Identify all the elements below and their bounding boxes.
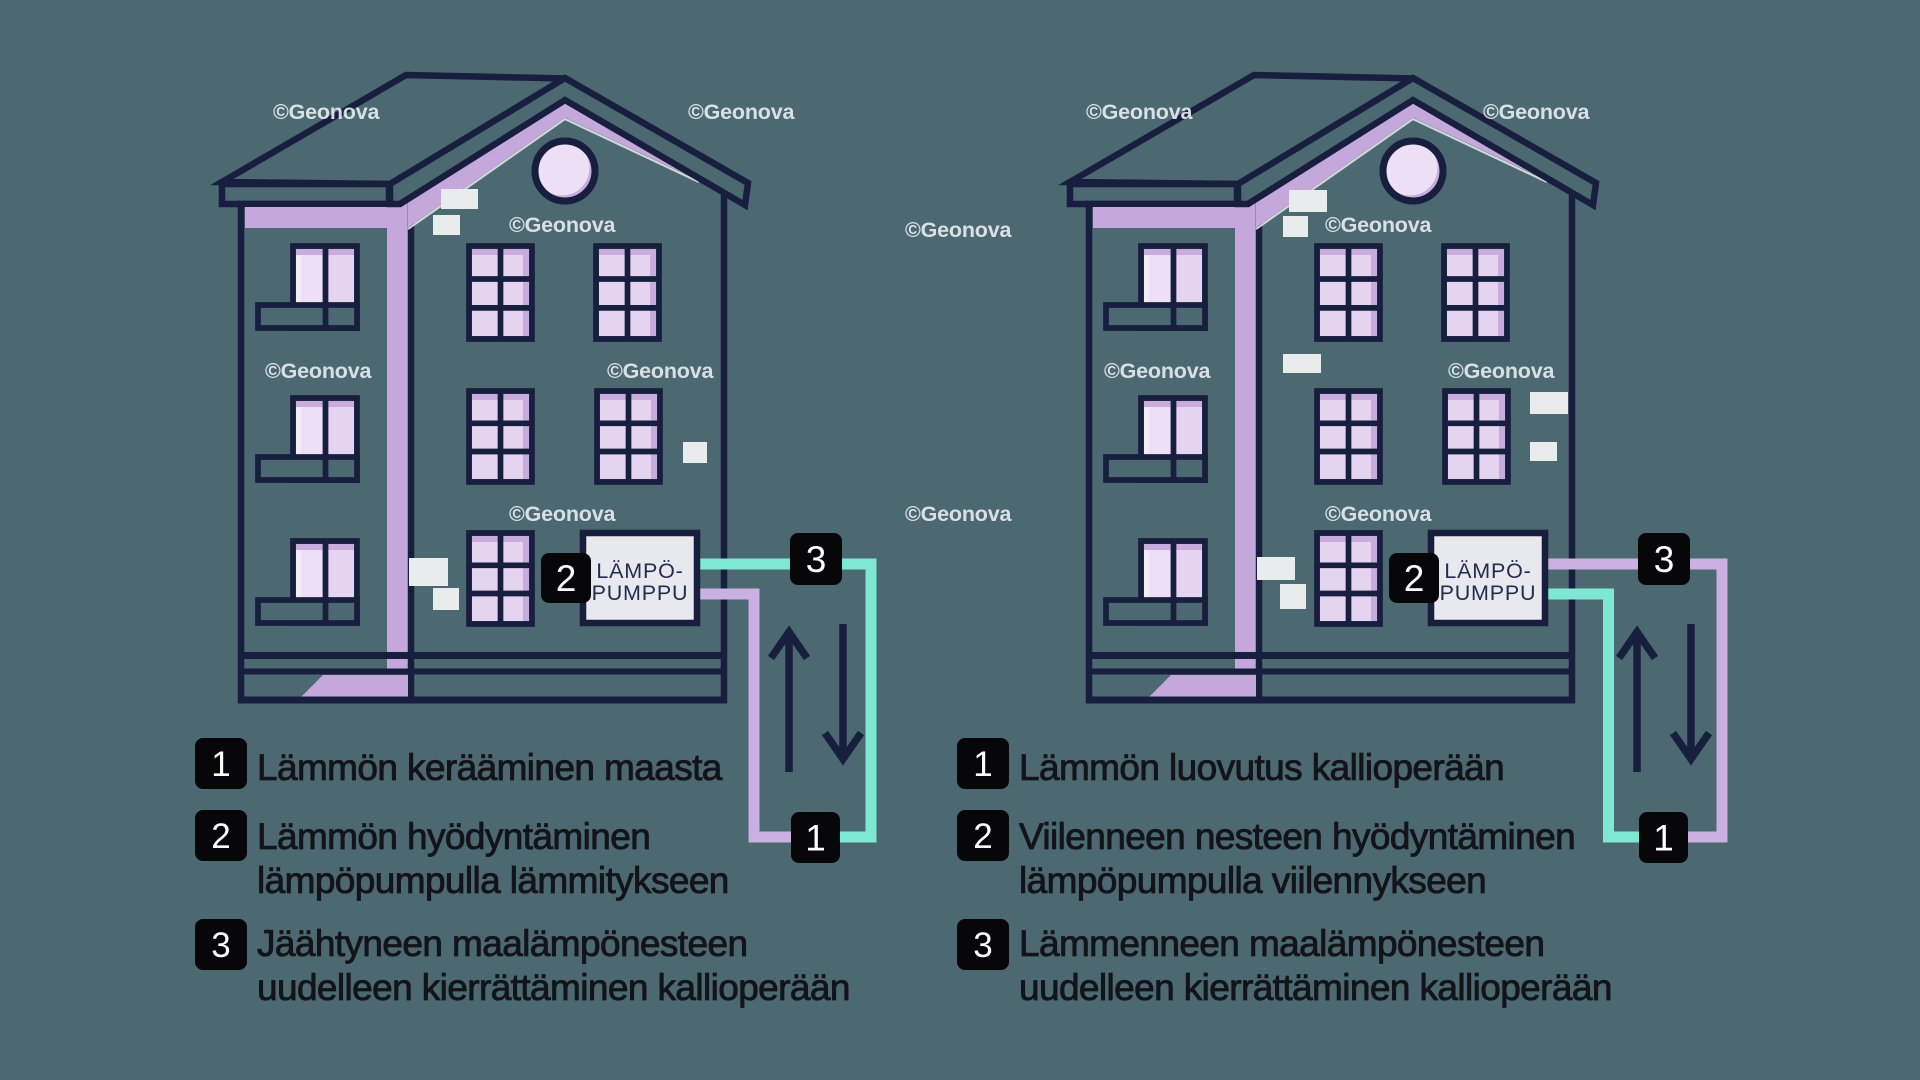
svg-text:2: 2	[1404, 558, 1425, 599]
svg-text:Lämmön hyödyntäminen: Lämmön hyödyntäminen	[257, 816, 650, 857]
svg-text:©Geonova: ©Geonova	[509, 502, 616, 526]
svg-text:PUMPPU: PUMPPU	[592, 581, 689, 605]
svg-text:©Geonova: ©Geonova	[1086, 100, 1193, 124]
svg-text:lämpöpumpulla viilennykseen: lämpöpumpulla viilennykseen	[1019, 860, 1486, 901]
svg-text:©Geonova: ©Geonova	[1325, 502, 1432, 526]
svg-text:©Geonova: ©Geonova	[273, 100, 380, 124]
svg-text:©Geonova: ©Geonova	[1483, 100, 1590, 124]
svg-text:1: 1	[1653, 818, 1674, 859]
svg-text:©Geonova: ©Geonova	[509, 213, 616, 237]
svg-text:Lämmön luovutus kallioperään: Lämmön luovutus kallioperään	[1019, 747, 1504, 788]
svg-text:©Geonova: ©Geonova	[905, 502, 1012, 526]
svg-text:lämpöpumpulla lämmitykseen: lämpöpumpulla lämmitykseen	[257, 860, 729, 901]
svg-text:uudelleen kierrättäminen kalli: uudelleen kierrättäminen kallioperään	[257, 967, 850, 1008]
svg-text:©Geonova: ©Geonova	[1448, 359, 1555, 383]
svg-text:Lämmenneen maalämpönesteen: Lämmenneen maalämpönesteen	[1019, 923, 1544, 964]
svg-text:3: 3	[973, 926, 992, 965]
svg-text:Lämmön kerääminen maasta: Lämmön kerääminen maasta	[257, 747, 723, 788]
svg-text:Jäähtyneen maalämpönesteen: Jäähtyneen maalämpönesteen	[257, 923, 747, 964]
svg-text:uudelleen kierrättäminen kalli: uudelleen kierrättäminen kallioperään	[1019, 967, 1612, 1008]
svg-text:©Geonova: ©Geonova	[688, 100, 795, 124]
svg-text:©Geonova: ©Geonova	[607, 359, 714, 383]
svg-text:LÄMPÖ-: LÄMPÖ-	[1444, 559, 1531, 583]
svg-text:2: 2	[973, 817, 992, 856]
svg-text:©Geonova: ©Geonova	[265, 359, 372, 383]
svg-text:PUMPPU: PUMPPU	[1440, 581, 1537, 605]
svg-text:©Geonova: ©Geonova	[1104, 359, 1211, 383]
svg-text:Viilenneen nesteen hyödyntämin: Viilenneen nesteen hyödyntäminen	[1019, 816, 1575, 857]
svg-text:1: 1	[211, 745, 230, 784]
svg-text:3: 3	[806, 539, 827, 580]
svg-text:2: 2	[211, 817, 230, 856]
svg-text:©Geonova: ©Geonova	[1325, 213, 1432, 237]
svg-text:©Geonova: ©Geonova	[905, 218, 1012, 242]
svg-text:1: 1	[805, 818, 826, 859]
svg-text:LÄMPÖ-: LÄMPÖ-	[596, 559, 683, 583]
svg-text:1: 1	[973, 745, 992, 784]
svg-text:3: 3	[1654, 539, 1675, 580]
svg-text:2: 2	[556, 558, 577, 599]
svg-text:3: 3	[211, 926, 230, 965]
